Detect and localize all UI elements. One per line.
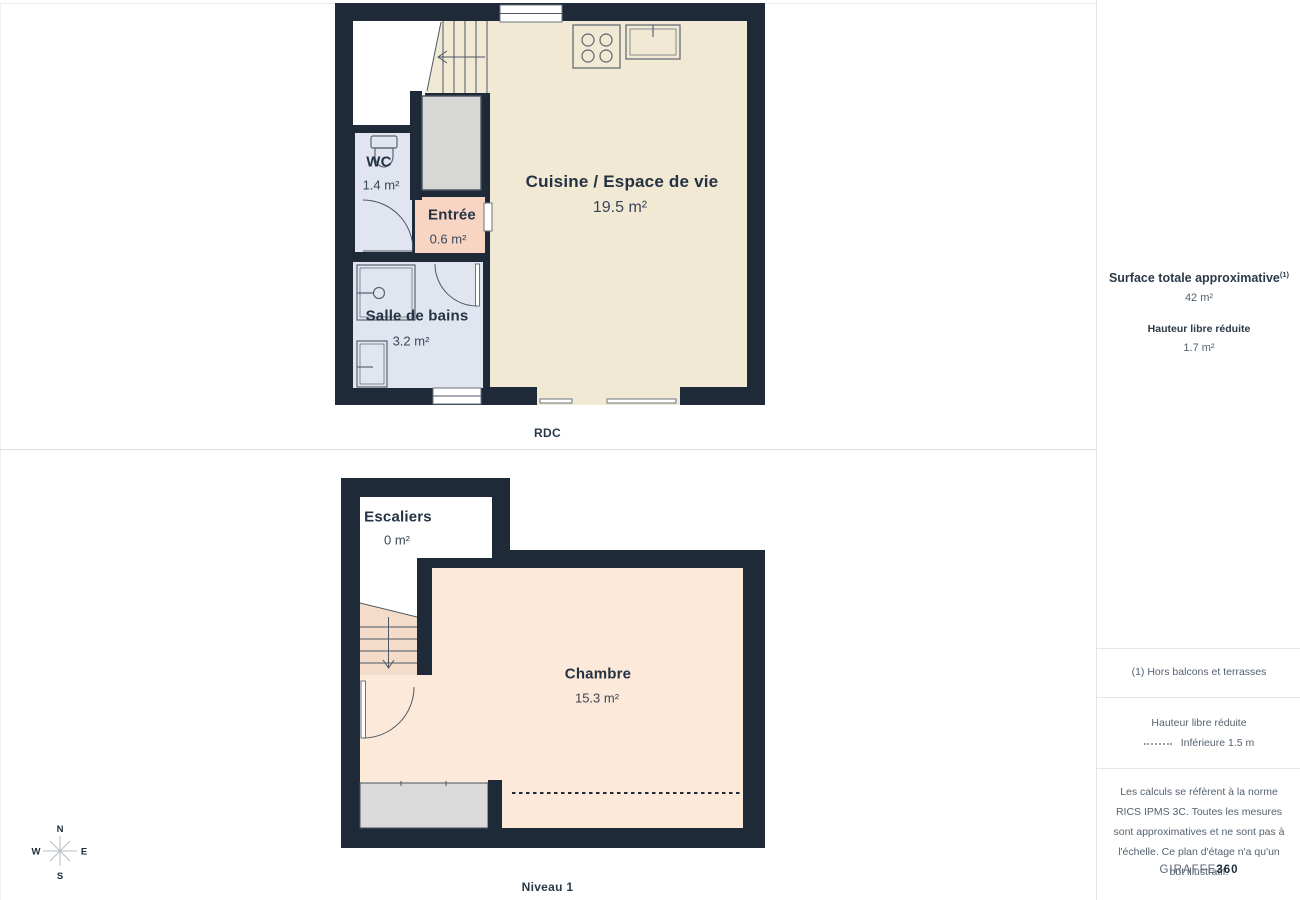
surface-total-title-text: Surface totale approximative xyxy=(1109,271,1280,285)
surface-total-value: 42 m² xyxy=(1097,292,1300,304)
n1-escaliers-floor2 xyxy=(360,558,417,605)
compass-west: W xyxy=(32,847,41,858)
rdc-caption: RDC xyxy=(0,426,1095,440)
n1-escaliers-floor xyxy=(360,497,492,558)
legend-title: Hauteur libre réduite xyxy=(1097,717,1300,729)
compass-rose: N E S W xyxy=(28,819,92,883)
compass-lines xyxy=(43,836,77,866)
footnote-text: (1) Hors balcons et terrasses xyxy=(1097,666,1300,678)
floorplan-page: Cuisine / Espace de vie 19.5 m² WC 1.4 m… xyxy=(0,0,1300,900)
compass-north: N xyxy=(57,824,64,835)
dotted-line-icon xyxy=(1144,742,1172,745)
sidebar-divider-3 xyxy=(1097,768,1300,769)
n1-storage xyxy=(360,781,488,828)
room-area-entree: 0.6 m² xyxy=(430,232,467,247)
room-area-escaliers: 0 m² xyxy=(384,533,410,548)
niveau1-caption: Niveau 1 xyxy=(0,880,1095,894)
room-area-wc: 1.4 m² xyxy=(363,178,400,193)
room-area-chambre: 15.3 m² xyxy=(575,691,619,706)
reduced-height-title: Hauteur libre réduite xyxy=(1097,323,1300,335)
rdc-inner-wall xyxy=(410,91,422,200)
compass-south: S xyxy=(57,871,63,882)
rdc-sliding-door xyxy=(537,387,680,405)
niveau1-floorplan: Escaliers 0 m² Chambre 15.3 m² xyxy=(341,478,765,848)
summary-sidebar: Surface totale approximative(1) 42 m² Ha… xyxy=(1096,0,1300,900)
sidebar-divider-1 xyxy=(1097,648,1300,649)
brand-logo: GIRAFFE360 xyxy=(1097,864,1300,876)
brand-suffix: 360 xyxy=(1216,864,1238,876)
room-area-cuisine: 19.5 m² xyxy=(593,199,647,217)
room-label-escaliers: Escaliers xyxy=(364,509,432,526)
legend-item-text: Inférieure 1.5 m xyxy=(1181,737,1255,749)
room-label-entree: Entrée xyxy=(428,207,476,224)
legend-row: Inférieure 1.5 m xyxy=(1097,737,1300,749)
n1-wall-stub xyxy=(488,780,502,832)
room-label-chambre: Chambre xyxy=(565,666,631,683)
room-label-cuisine: Cuisine / Espace de vie xyxy=(526,172,719,192)
entree-doorway xyxy=(484,203,492,231)
rdc-wc-floor xyxy=(355,133,412,252)
compass-east: E xyxy=(81,847,87,858)
room-label-wc: WC xyxy=(366,154,391,171)
rdc-sdb-floor xyxy=(353,262,483,388)
sidebar-divider-2 xyxy=(1097,697,1300,698)
rdc-window-bottom xyxy=(433,388,481,404)
rdc-floorplan: Cuisine / Espace de vie 19.5 m² WC 1.4 m… xyxy=(335,3,765,405)
n1-chambre-floor-ext xyxy=(360,675,432,783)
rdc-window-top xyxy=(500,5,562,22)
room-label-sdb: Salle de bains xyxy=(366,308,469,325)
surface-total-title: Surface totale approximative(1) xyxy=(1097,270,1300,285)
reduced-height-value: 1.7 m² xyxy=(1097,342,1300,354)
room-area-sdb: 3.2 m² xyxy=(393,334,430,349)
brand-name: GIRAFFE xyxy=(1159,864,1216,876)
rdc-closet xyxy=(422,96,481,190)
surface-footnote-marker: (1) xyxy=(1280,270,1289,279)
